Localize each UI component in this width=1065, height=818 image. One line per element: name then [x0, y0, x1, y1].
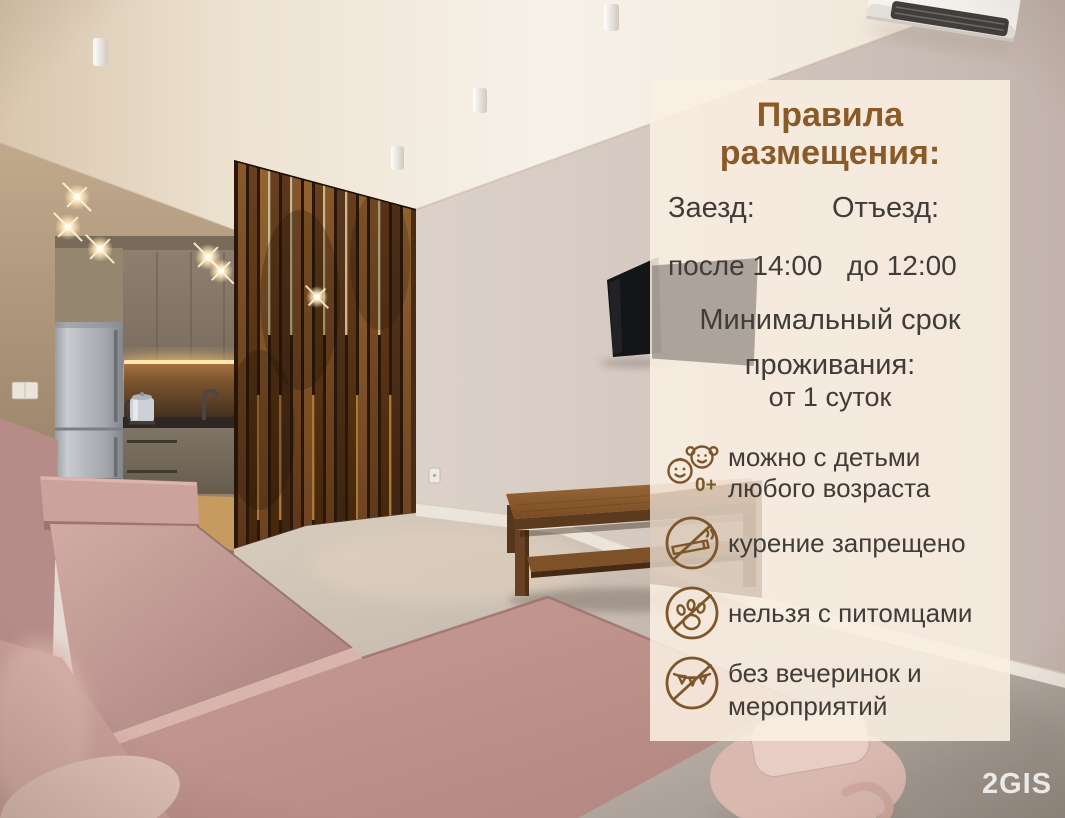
checkin-value: после 14:00	[668, 250, 823, 282]
children-age-badge: 0+	[695, 475, 717, 497]
rule-parties-label: без вечеринок и мероприятий	[728, 657, 1004, 723]
rule-smoking-label: курение запрещено	[728, 528, 1004, 559]
no-smoking-icon	[663, 514, 721, 572]
no-parties-icon	[663, 654, 721, 712]
checkout-value: до 12:00	[847, 250, 957, 282]
rule-pets-label: нельзя с питомцами	[728, 598, 1004, 629]
rule-children-label: можно с детьми любого возраста	[728, 442, 1004, 504]
min-stay-value: от 1 суток	[650, 382, 1010, 413]
rules-overlay-panel: Правила размещения: Заезд: Отъезд: после…	[650, 80, 1010, 741]
checkin-label: Заезд:	[668, 192, 755, 225]
min-stay-heading: Минимальный срок проживания:	[650, 298, 1010, 388]
no-pets-icon	[663, 584, 721, 642]
panel-title: Правила размещения:	[650, 96, 1010, 172]
screenshot-root: Правила размещения: Заезд: Отъезд: после…	[0, 0, 1065, 818]
watermark-2gis: 2GIS	[982, 768, 1052, 801]
checkout-label: Отъезд:	[832, 192, 939, 225]
